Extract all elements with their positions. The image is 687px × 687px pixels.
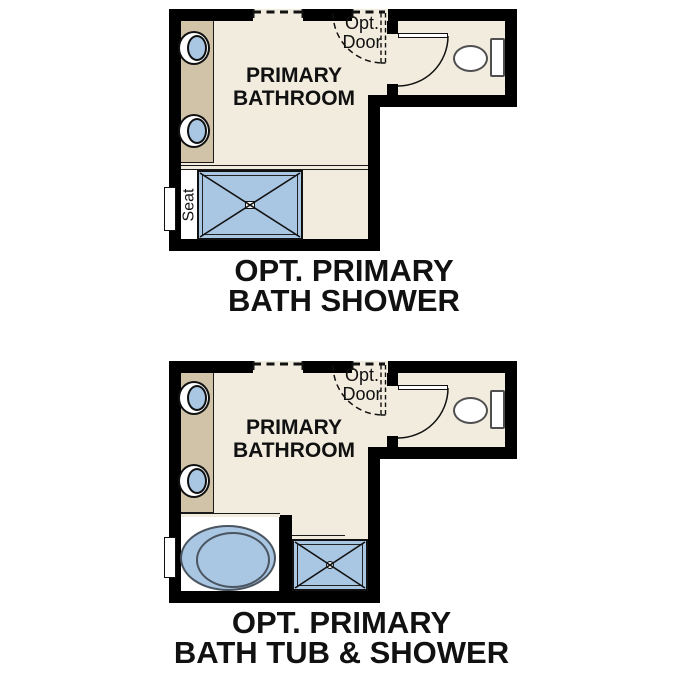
tub-basin-icon [196,532,270,588]
door-leaf [398,33,448,38]
threshold-line [181,165,368,166]
wall-niche [164,537,176,578]
opt-door-label-line: Door [326,385,398,404]
seat-label: Seat [180,188,198,221]
wall-segment [388,9,517,21]
plan-caption: OPT. PRIMARY BATH TUB & SHOWER [166,608,517,668]
door-leaf [398,385,448,390]
plan-bath-shower: Seat PRIMARY BATHROOM Opt. Door [169,9,517,252]
room-label: PRIMARY BATHROOM [199,64,389,110]
room-label: PRIMARY BATHROOM [199,416,389,462]
sink-basin-icon [187,35,207,61]
shower-surround-line [292,535,345,536]
caption-line: OPT. PRIMARY [166,608,517,638]
room-label-line: BATHROOM [199,87,389,110]
floorplan-canvas: Seat PRIMARY BATHROOM Opt. Door OPT. PRI [0,0,687,687]
toilet-icon [453,45,488,72]
wall-segment-tub-divider [280,515,292,603]
caption-line: OPT. PRIMARY [169,256,519,286]
wall-niche [164,187,176,231]
opt-door-label: Opt. Door [326,366,398,404]
sink-basin-icon [187,468,207,494]
wall-segment [169,361,253,373]
caption-line: BATH SHOWER [169,286,519,316]
toilet-icon [453,397,488,424]
room-label-line: BATHROOM [199,439,389,462]
shower-drain-icon [326,561,334,569]
room-label-line: PRIMARY [199,416,389,439]
opt-door-label-line: Door [326,33,398,52]
wall-segment [368,95,380,251]
wall-segment [505,9,517,107]
opt-door-label-line: Opt. [326,14,398,33]
wall-opening [253,9,303,21]
wall-segment [368,447,517,459]
room-label-line: PRIMARY [199,64,389,87]
wall-segment [368,95,517,107]
opt-door-label-line: Opt. [326,366,398,385]
sink-basin-icon [187,118,207,144]
caption-line: BATH TUB & SHOWER [166,638,517,668]
wall-segment [368,447,380,603]
wall-segment [169,239,380,251]
shower-seat: Seat [181,170,198,239]
wall-segment [388,361,517,373]
wall-segment [169,9,253,21]
wall-segment [505,361,517,459]
sink-basin-icon [187,385,207,411]
threshold-line [181,513,280,514]
opt-door-label: Opt. Door [326,14,398,52]
shower-drain-icon [245,201,255,209]
wall-segment [169,591,380,603]
toilet-tank-icon [490,38,505,77]
plan-bath-tub-shower: PRIMARY BATHROOM Opt. Door [169,361,517,604]
toilet-tank-icon [490,390,505,429]
wall-opening [253,361,303,373]
plan-caption: OPT. PRIMARY BATH SHOWER [169,256,519,316]
